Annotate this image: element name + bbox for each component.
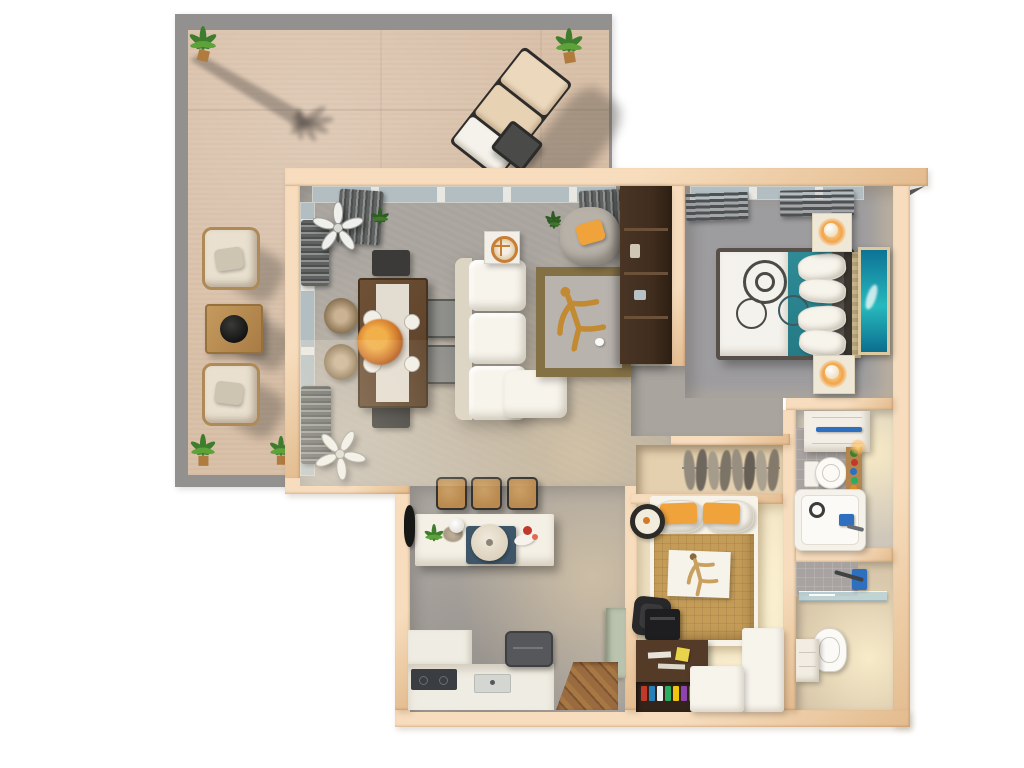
plant	[180, 24, 226, 72]
bar-stool	[471, 477, 502, 510]
windowsill-plant	[364, 204, 396, 236]
book	[657, 686, 663, 701]
lamp	[824, 223, 838, 237]
wall-top	[285, 168, 928, 186]
plant	[541, 212, 567, 238]
paper	[658, 664, 685, 670]
tub-drain	[809, 502, 825, 518]
round-bread-board	[471, 524, 508, 561]
decorative-plate	[491, 236, 518, 263]
dining-chair-rattan	[324, 344, 358, 380]
armchair-pillow	[575, 219, 607, 247]
storage-unit	[690, 666, 744, 712]
kitchen-island	[415, 514, 554, 566]
printer	[645, 609, 680, 640]
hanging-clothes	[684, 449, 782, 491]
dining-table	[358, 278, 428, 408]
book	[641, 686, 647, 701]
plate-cross	[493, 245, 510, 247]
kitchen-sink	[474, 674, 511, 693]
sofa-chaise	[503, 370, 567, 418]
window-blinds	[686, 191, 749, 221]
plant	[182, 432, 224, 476]
wall-right	[893, 186, 910, 727]
terrace-coffee-table	[205, 304, 263, 354]
blue-towel-rail	[816, 427, 862, 432]
dining-chair	[425, 299, 459, 338]
nightstand	[813, 355, 855, 394]
wall-bathroom1-top	[786, 396, 893, 410]
candle-glow	[850, 439, 866, 455]
white-pebble	[595, 338, 604, 346]
table-lamp	[449, 518, 464, 533]
wall-bedroom2-bath	[783, 410, 796, 710]
orange-pillow	[660, 502, 698, 524]
wall-living-bedroom	[671, 186, 685, 368]
ceiling-fan	[314, 428, 366, 480]
chair-pillow	[214, 380, 244, 405]
nightstand	[812, 213, 852, 252]
tv-artwork	[858, 247, 890, 355]
living-armchair	[560, 207, 620, 265]
round-wall-decor	[630, 504, 665, 539]
wall-mirror	[404, 505, 415, 547]
plate-cross	[500, 238, 502, 256]
book	[673, 686, 679, 701]
ceiling-fan	[312, 202, 364, 254]
appliance-top	[505, 631, 553, 667]
bar-stool	[436, 477, 467, 510]
black-bowl	[220, 315, 248, 343]
dining-bench	[372, 250, 410, 276]
floral-centerpiece	[357, 319, 403, 365]
lamp	[825, 365, 839, 379]
sofa-cushion	[469, 313, 526, 364]
storage-unit	[742, 628, 784, 712]
sofa-cushion	[469, 260, 526, 311]
shelf-item	[634, 290, 646, 300]
bathtub	[794, 489, 866, 551]
chair-pillow	[214, 246, 245, 272]
book	[665, 686, 671, 701]
bath-cabinet	[796, 639, 819, 682]
wall-left	[285, 186, 300, 482]
condiment-red	[523, 526, 532, 535]
sticky-note	[675, 647, 690, 662]
plate	[404, 314, 420, 330]
master-bed	[716, 248, 854, 360]
book	[681, 686, 687, 701]
sofa-side-table	[484, 231, 520, 264]
plate	[404, 356, 420, 372]
dining-chair	[425, 345, 459, 384]
paper	[648, 651, 671, 658]
floor-plan-scene	[0, 0, 1024, 768]
book	[649, 686, 655, 701]
cooktop	[411, 669, 457, 690]
orange-pillow	[703, 502, 741, 524]
wall-bottom	[395, 710, 910, 727]
shower-glass-panel	[799, 591, 887, 601]
area-rug	[536, 267, 631, 377]
condiment	[532, 534, 538, 540]
plant	[546, 26, 592, 74]
dining-chair-rattan	[324, 298, 358, 334]
circle-pattern	[736, 298, 767, 329]
toilet	[804, 457, 846, 488]
bar-stool	[507, 477, 538, 510]
media-cabinet	[620, 186, 672, 364]
terrace-armchair	[202, 227, 260, 290]
kitchen-counter	[408, 630, 472, 668]
shelf-item	[630, 244, 640, 258]
terrace-armchair	[202, 363, 260, 426]
